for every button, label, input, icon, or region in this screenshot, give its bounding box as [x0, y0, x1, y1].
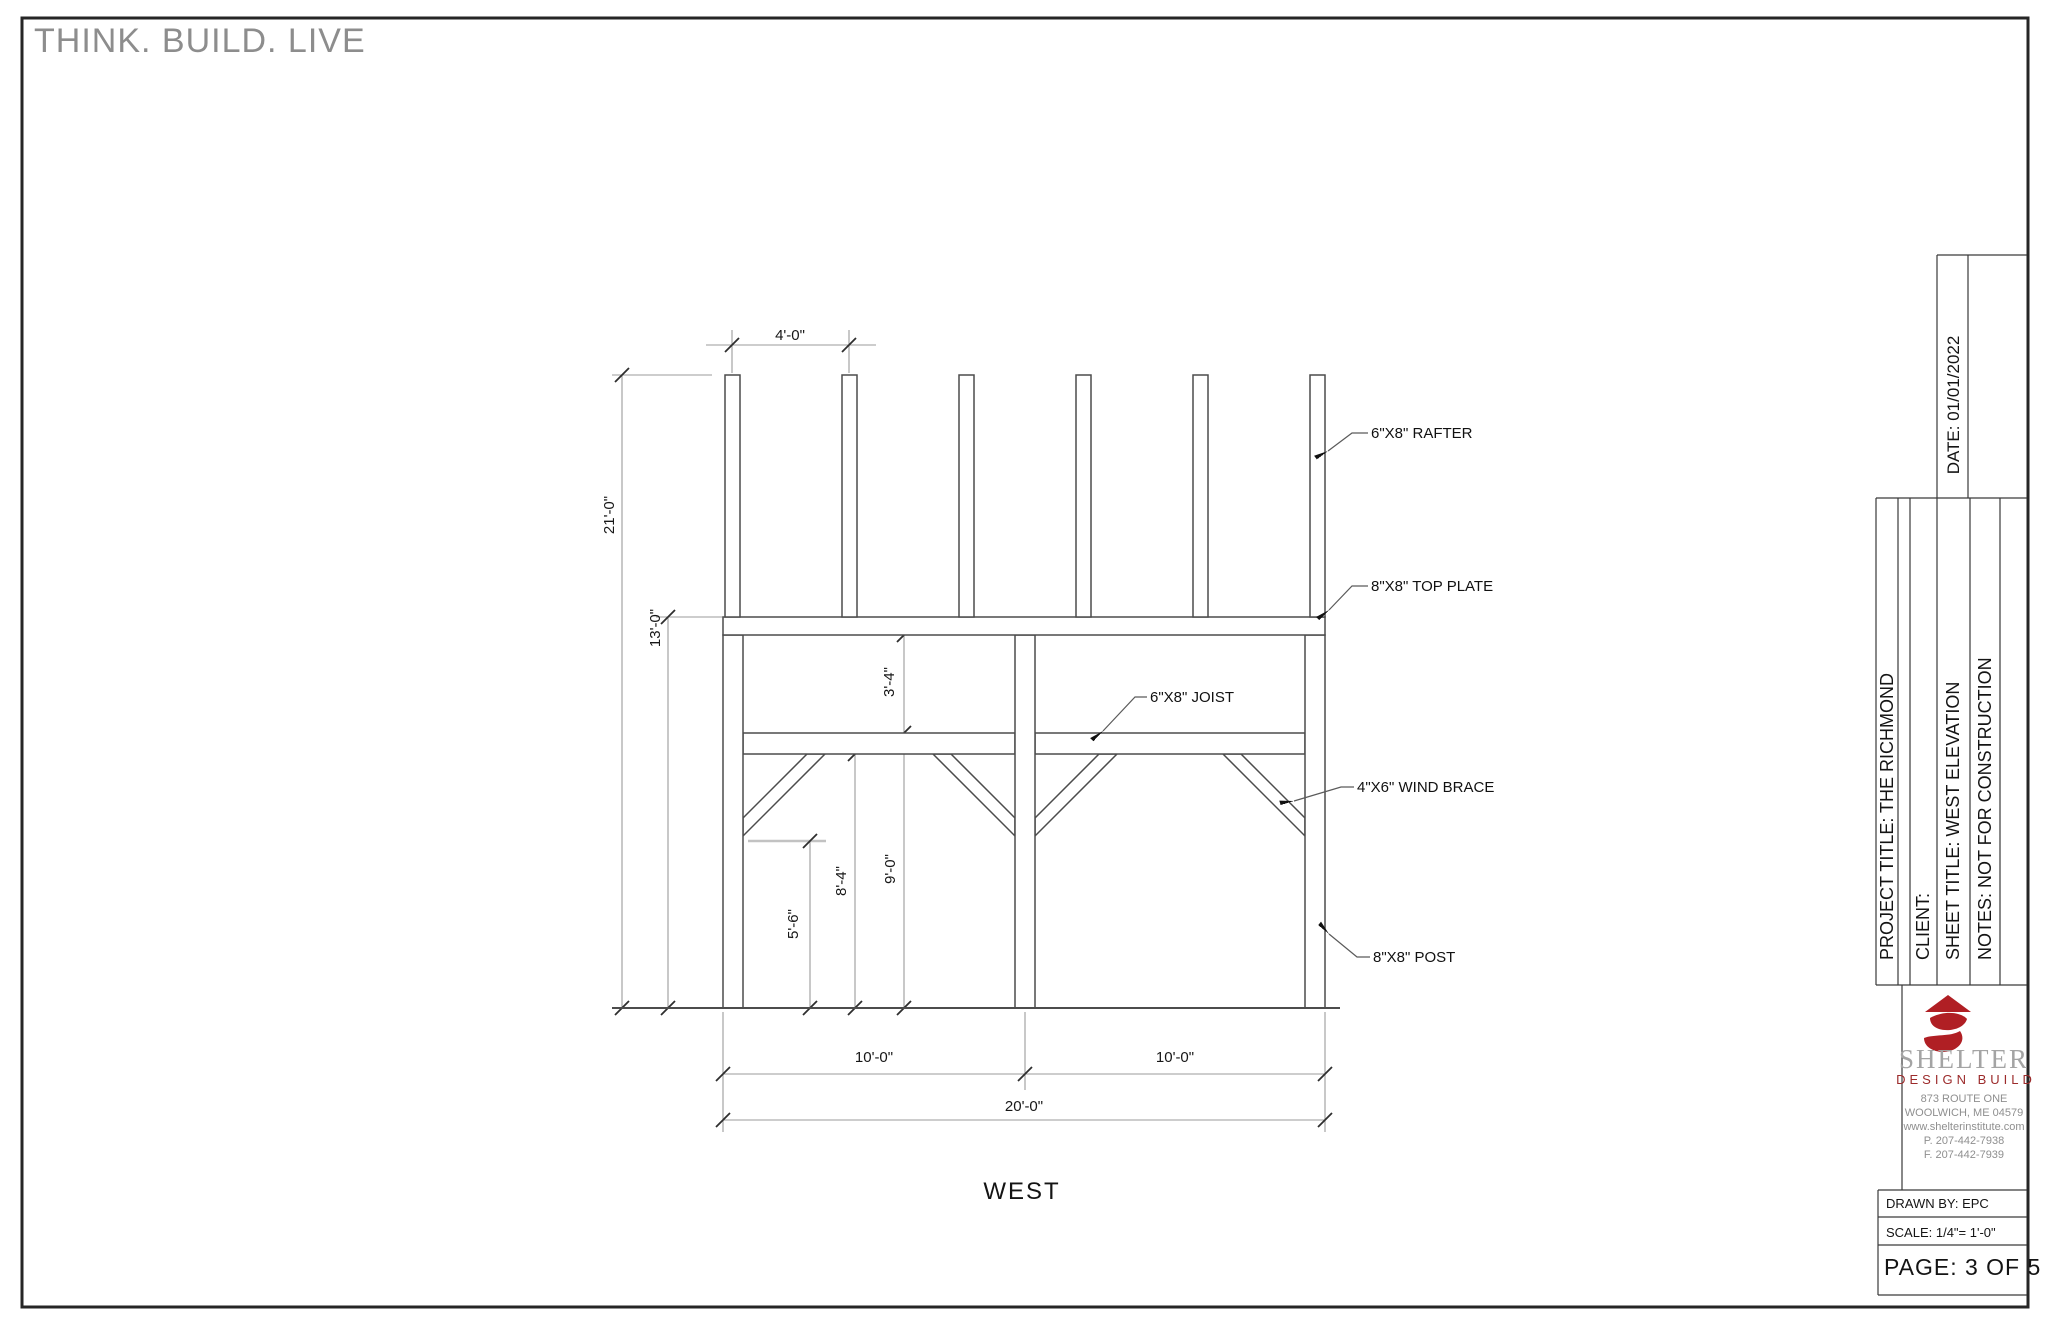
wind-brace-right-bay-left [1035, 754, 1117, 836]
label-wind-brace: 4"X6" WIND BRACE [1357, 779, 1494, 796]
dim-joist-bottom-height: 8'-4" [833, 866, 850, 896]
sheet-tagline: THINK. BUILD. LIVE [34, 22, 366, 61]
post-middle [1015, 635, 1035, 1008]
logo-tagline: DESIGN BUILD [1896, 1072, 2036, 1087]
titleblock-notes: NOTES: NOT FOR CONSTRUCTION [1975, 657, 1996, 960]
dim-overall-width: 20'-0" [1005, 1098, 1043, 1115]
joist-left-bay [743, 733, 1015, 754]
rafter-2 [842, 375, 857, 617]
label-top-plate: 8"X8" TOP PLATE [1371, 578, 1493, 595]
leader-post [1329, 934, 1370, 957]
rafter-3 [959, 375, 974, 617]
address-line: www.shelterinstitute.com [1903, 1120, 2024, 1134]
titleblock-date: DATE: 01/01/2022 [1944, 336, 1964, 475]
dim-joist-top-height: 9'-0" [882, 854, 899, 884]
logo-name: SHELTER [1899, 1044, 2029, 1075]
titleblock-scale: SCALE: 1/4"= 1'-0" [1886, 1225, 1996, 1240]
logo-address: 873 ROUTE ONE WOOLWICH, ME 04579 www.she… [1903, 1092, 2024, 1162]
dim-overall-height: 21'-0" [601, 496, 618, 534]
address-line: F. 207-442-7939 [1903, 1148, 2024, 1162]
titleblock-sheet-title: SHEET TITLE: WEST ELEVATION [1943, 682, 1964, 960]
dim-bay-left: 10'-0" [855, 1049, 893, 1066]
dim-rafter-spacing: 4'-0" [775, 327, 805, 344]
dim-brace-foot-height: 5'-6" [785, 909, 802, 939]
rafter-4 [1076, 375, 1091, 617]
titleblock-drawn-by: DRAWN BY: EPC [1886, 1196, 1989, 1211]
post-left [723, 635, 743, 1008]
wind-brace-left-bay-left [743, 754, 825, 836]
dim-plate-to-joist: 3'-4" [881, 667, 898, 697]
dim-eave-height: 13'-0" [647, 609, 664, 647]
post-right [1305, 635, 1325, 1008]
label-rafter: 6"X8" RAFTER [1371, 425, 1473, 442]
leader-top-plate [1329, 586, 1368, 610]
sheet-linework [0, 0, 2048, 1325]
wind-brace-left-bay-right [933, 754, 1015, 836]
address-line: 873 ROUTE ONE [1903, 1092, 2024, 1106]
address-line: WOOLWICH, ME 04579 [1903, 1106, 2024, 1120]
rafter-1 [725, 375, 740, 617]
titleblock-project-title: PROJECT TITLE: THE RICHMOND [1877, 673, 1898, 960]
titleblock-client: CLIENT: [1913, 893, 1934, 960]
drawing-sheet: THINK. BUILD. LIVE 4'-0" 21'-0" 13'-0" 3… [0, 0, 2048, 1325]
wind-brace-right-bay-right [1223, 754, 1305, 836]
joist-right-bay [1035, 733, 1305, 754]
rafter-6 [1310, 375, 1325, 617]
view-title: WEST [983, 1178, 1060, 1206]
dim-bay-right: 10'-0" [1156, 1049, 1194, 1066]
titleblock-page-number: PAGE: 3 OF 5 [1884, 1254, 2041, 1281]
rafter-5 [1193, 375, 1208, 617]
address-line: P. 207-442-7938 [1903, 1134, 2024, 1148]
label-joist: 6"X8" JOIST [1150, 689, 1234, 706]
top-plate [723, 617, 1325, 635]
leader-rafter [1328, 433, 1368, 451]
label-post: 8"X8" POST [1373, 949, 1455, 966]
leader-lines [1103, 433, 1370, 957]
leader-joist [1103, 697, 1147, 731]
